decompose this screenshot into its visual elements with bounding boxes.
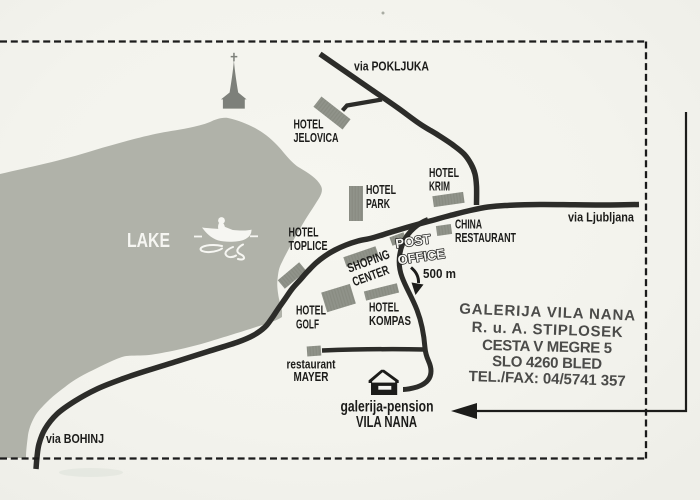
svg-text:HOTEL: HOTEL (366, 182, 396, 197)
svg-text:JELOVICA: JELOVICA (294, 130, 339, 145)
svg-text:RESTAURANT: RESTAURANT (455, 230, 516, 245)
svg-text:500 m: 500 m (423, 266, 456, 281)
svg-text:VILA NANA: VILA NANA (356, 414, 417, 431)
svg-text:via BOHINJ: via BOHINJ (46, 431, 104, 446)
svg-text:LAKE: LAKE (127, 230, 170, 252)
svg-text:PARK: PARK (366, 196, 390, 211)
svg-text:HOTEL: HOTEL (296, 303, 326, 318)
svg-text:GOLF: GOLF (296, 317, 319, 332)
svg-text:MAYER: MAYER (294, 369, 329, 384)
svg-text:via Ljubljana: via Ljubljana (568, 210, 635, 225)
svg-text:KOMPAS: KOMPAS (369, 313, 411, 328)
svg-text:via POKLJUKA: via POKLJUKA (354, 59, 429, 74)
svg-text:galerija-pension: galerija-pension (341, 399, 434, 416)
svg-text:TOPLICE: TOPLICE (289, 238, 328, 253)
svg-text:KRIM: KRIM (429, 179, 450, 194)
